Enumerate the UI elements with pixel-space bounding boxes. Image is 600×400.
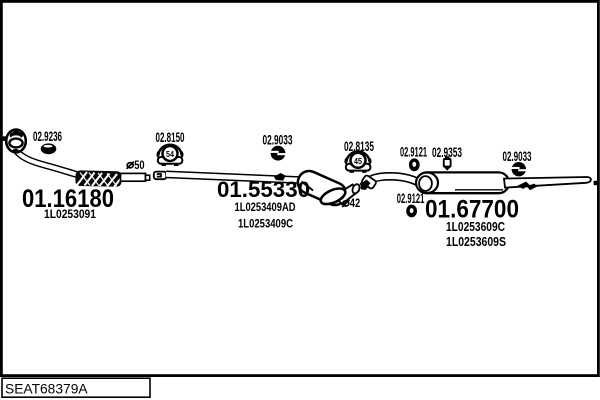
svg-text:45: 45 xyxy=(354,156,362,166)
svg-text:50: 50 xyxy=(134,159,144,172)
svg-text:02.9121: 02.9121 xyxy=(400,143,427,159)
svg-text:1L0253409AD: 1L0253409AD xyxy=(235,200,296,214)
svg-text:42: 42 xyxy=(350,197,360,210)
svg-text:01.55330: 01.55330 xyxy=(217,177,310,202)
svg-text:02.9353: 02.9353 xyxy=(432,144,462,160)
svg-text:54: 54 xyxy=(166,149,174,159)
svg-text:02.9033: 02.9033 xyxy=(503,148,532,164)
svg-text:1L0253409C: 1L0253409C xyxy=(238,216,293,230)
svg-text:02.8135: 02.8135 xyxy=(344,138,374,154)
svg-text:02.9236: 02.9236 xyxy=(33,128,62,144)
svg-text:1L0253091: 1L0253091 xyxy=(44,207,96,221)
svg-text:SEAT68379A: SEAT68379A xyxy=(5,382,88,397)
svg-text:02.9121: 02.9121 xyxy=(397,190,425,206)
svg-text:1L0253609C: 1L0253609C xyxy=(446,220,505,234)
svg-text:1L0253609S: 1L0253609S xyxy=(446,235,506,249)
svg-text:02.9033: 02.9033 xyxy=(263,132,293,148)
svg-text:02.8150: 02.8150 xyxy=(156,129,185,145)
